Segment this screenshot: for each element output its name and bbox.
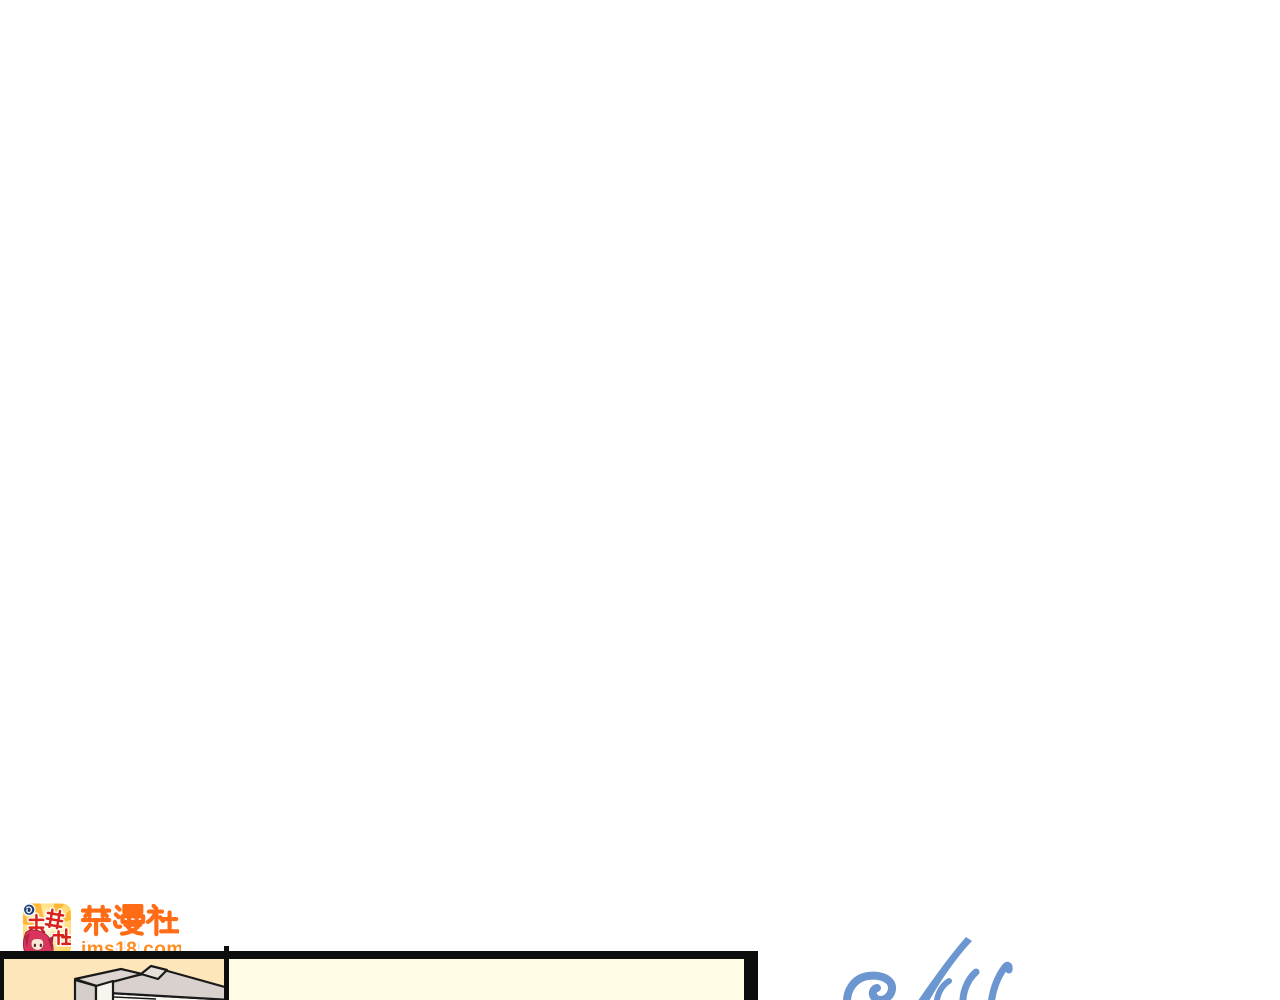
site-logo-title: 禁漫社 [81, 904, 179, 937]
scribble-loop [847, 976, 892, 1000]
app-icon-art-icon [22, 902, 72, 957]
panel-border-left [0, 959, 4, 1000]
site-title-kanji-icon [81, 904, 179, 937]
jinmanshe-app-icon: 禁漫社 [22, 902, 72, 957]
panel-divider-line [224, 946, 229, 1000]
scribble-stroke-2 [963, 972, 976, 1000]
panel-border-right [744, 951, 758, 1000]
scribble-strokes-icon [830, 928, 1020, 1000]
blue-signature-scribble [830, 928, 1020, 1000]
scribble-stroke-3 [991, 965, 1009, 1000]
panel-border-top [0, 951, 758, 959]
comic-panel-left [4, 959, 224, 1000]
comic-panel-right [229, 959, 744, 1000]
badge-char-label: の [72, 902, 73, 903]
no-badge [23, 904, 35, 916]
furniture-drawing-icon [4, 959, 224, 1000]
